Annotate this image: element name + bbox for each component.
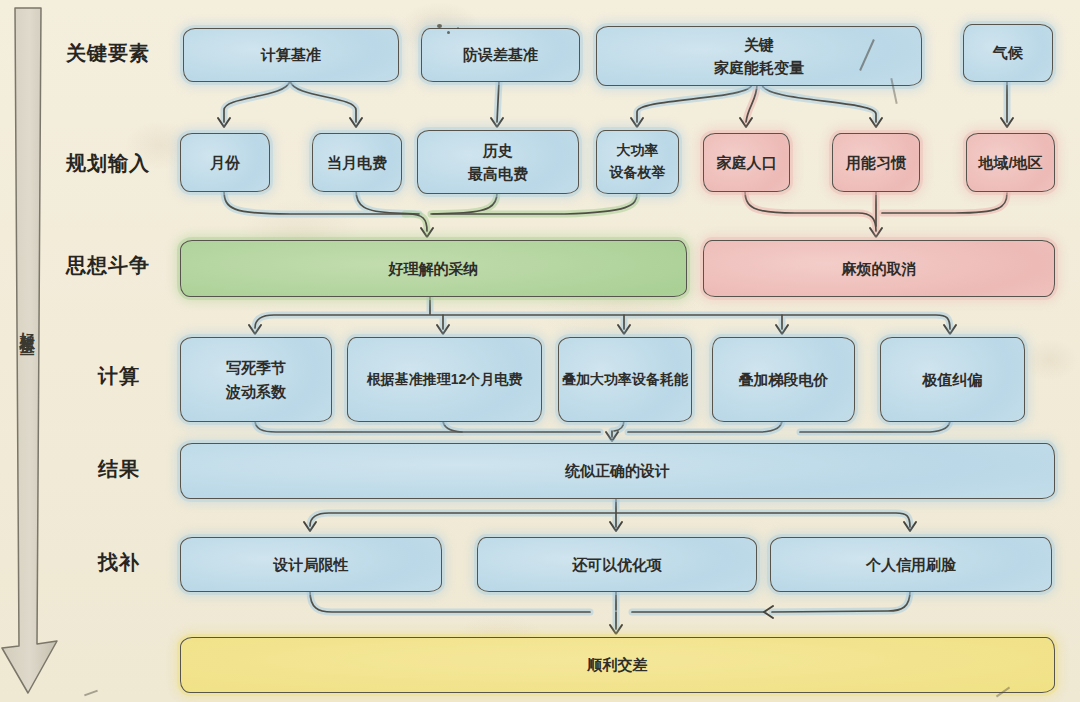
node-climate: 气候 [963,24,1053,82]
node-calc-baseline: 计算基准 [183,28,399,82]
node-cancel-troublesome: 麻烦的取消 [703,240,1055,297]
edge-glow-green [405,193,637,231]
side-note-vertical-text: 好想摸鱼 [17,320,36,332]
node-stack-high-power-consumption: 叠加大功率设备耗能 [558,337,692,422]
node-infer-12-month-bills: 根据基准推理12个月电费 [347,337,542,422]
node-energy-habits: 用能习惯 [832,133,920,192]
node-household-size: 家庭人口 [703,133,790,192]
stage-label-key-elements: 关键要素 [66,40,150,67]
node-high-power-devices: 大功率 设备枚举 [596,130,679,194]
node-optimizable-items: 还可以优化项 [477,537,757,592]
node-anti-error-baseline: 防误差基准 [421,28,580,82]
node-plausibly-correct-design: 统似正确的设计 [180,443,1055,499]
stage-label-planning-inputs: 规划输入 [66,150,150,177]
node-personal-credit: 个人信用刷脸 [770,537,1052,592]
ink-speck [457,27,459,29]
node-deliver-successfully: 顺利交差 [180,637,1055,693]
node-current-month-bill: 当月电费 [312,133,402,192]
stage-label-patching: 找补 [98,549,140,576]
watercolor-flowchart: 关键要素 规划输入 思想斗争 计算 结果 找补 好想摸鱼 计算基准 防误差基准 … [0,0,1080,702]
stage-label-mental-struggle: 思想斗争 [66,252,150,279]
stage-label-result: 结果 [98,456,140,483]
node-historical-max-bill: 历史 最高电费 [417,130,579,194]
pencil-mark [84,690,98,697]
node-key-household-energy-vars: 关键 家庭能耗变量 [596,26,922,86]
node-design-limitations: 设计局限性 [180,537,442,592]
node-stack-tiered-pricing: 叠加梯段电价 [712,337,855,422]
node-adopt-easy: 好理解的采纳 [180,240,687,297]
ink-speck [437,24,442,28]
node-month: 月份 [180,133,270,192]
node-extreme-correction: 极值纠偏 [880,337,1025,422]
timeline-arrow [2,8,57,693]
node-hardcode-seasonal-coefficient: 写死季节 波动系数 [180,337,332,422]
node-region: 地域/地区 [966,133,1055,192]
ink-speck [447,31,450,34]
stage-label-calculation: 计算 [98,363,140,390]
